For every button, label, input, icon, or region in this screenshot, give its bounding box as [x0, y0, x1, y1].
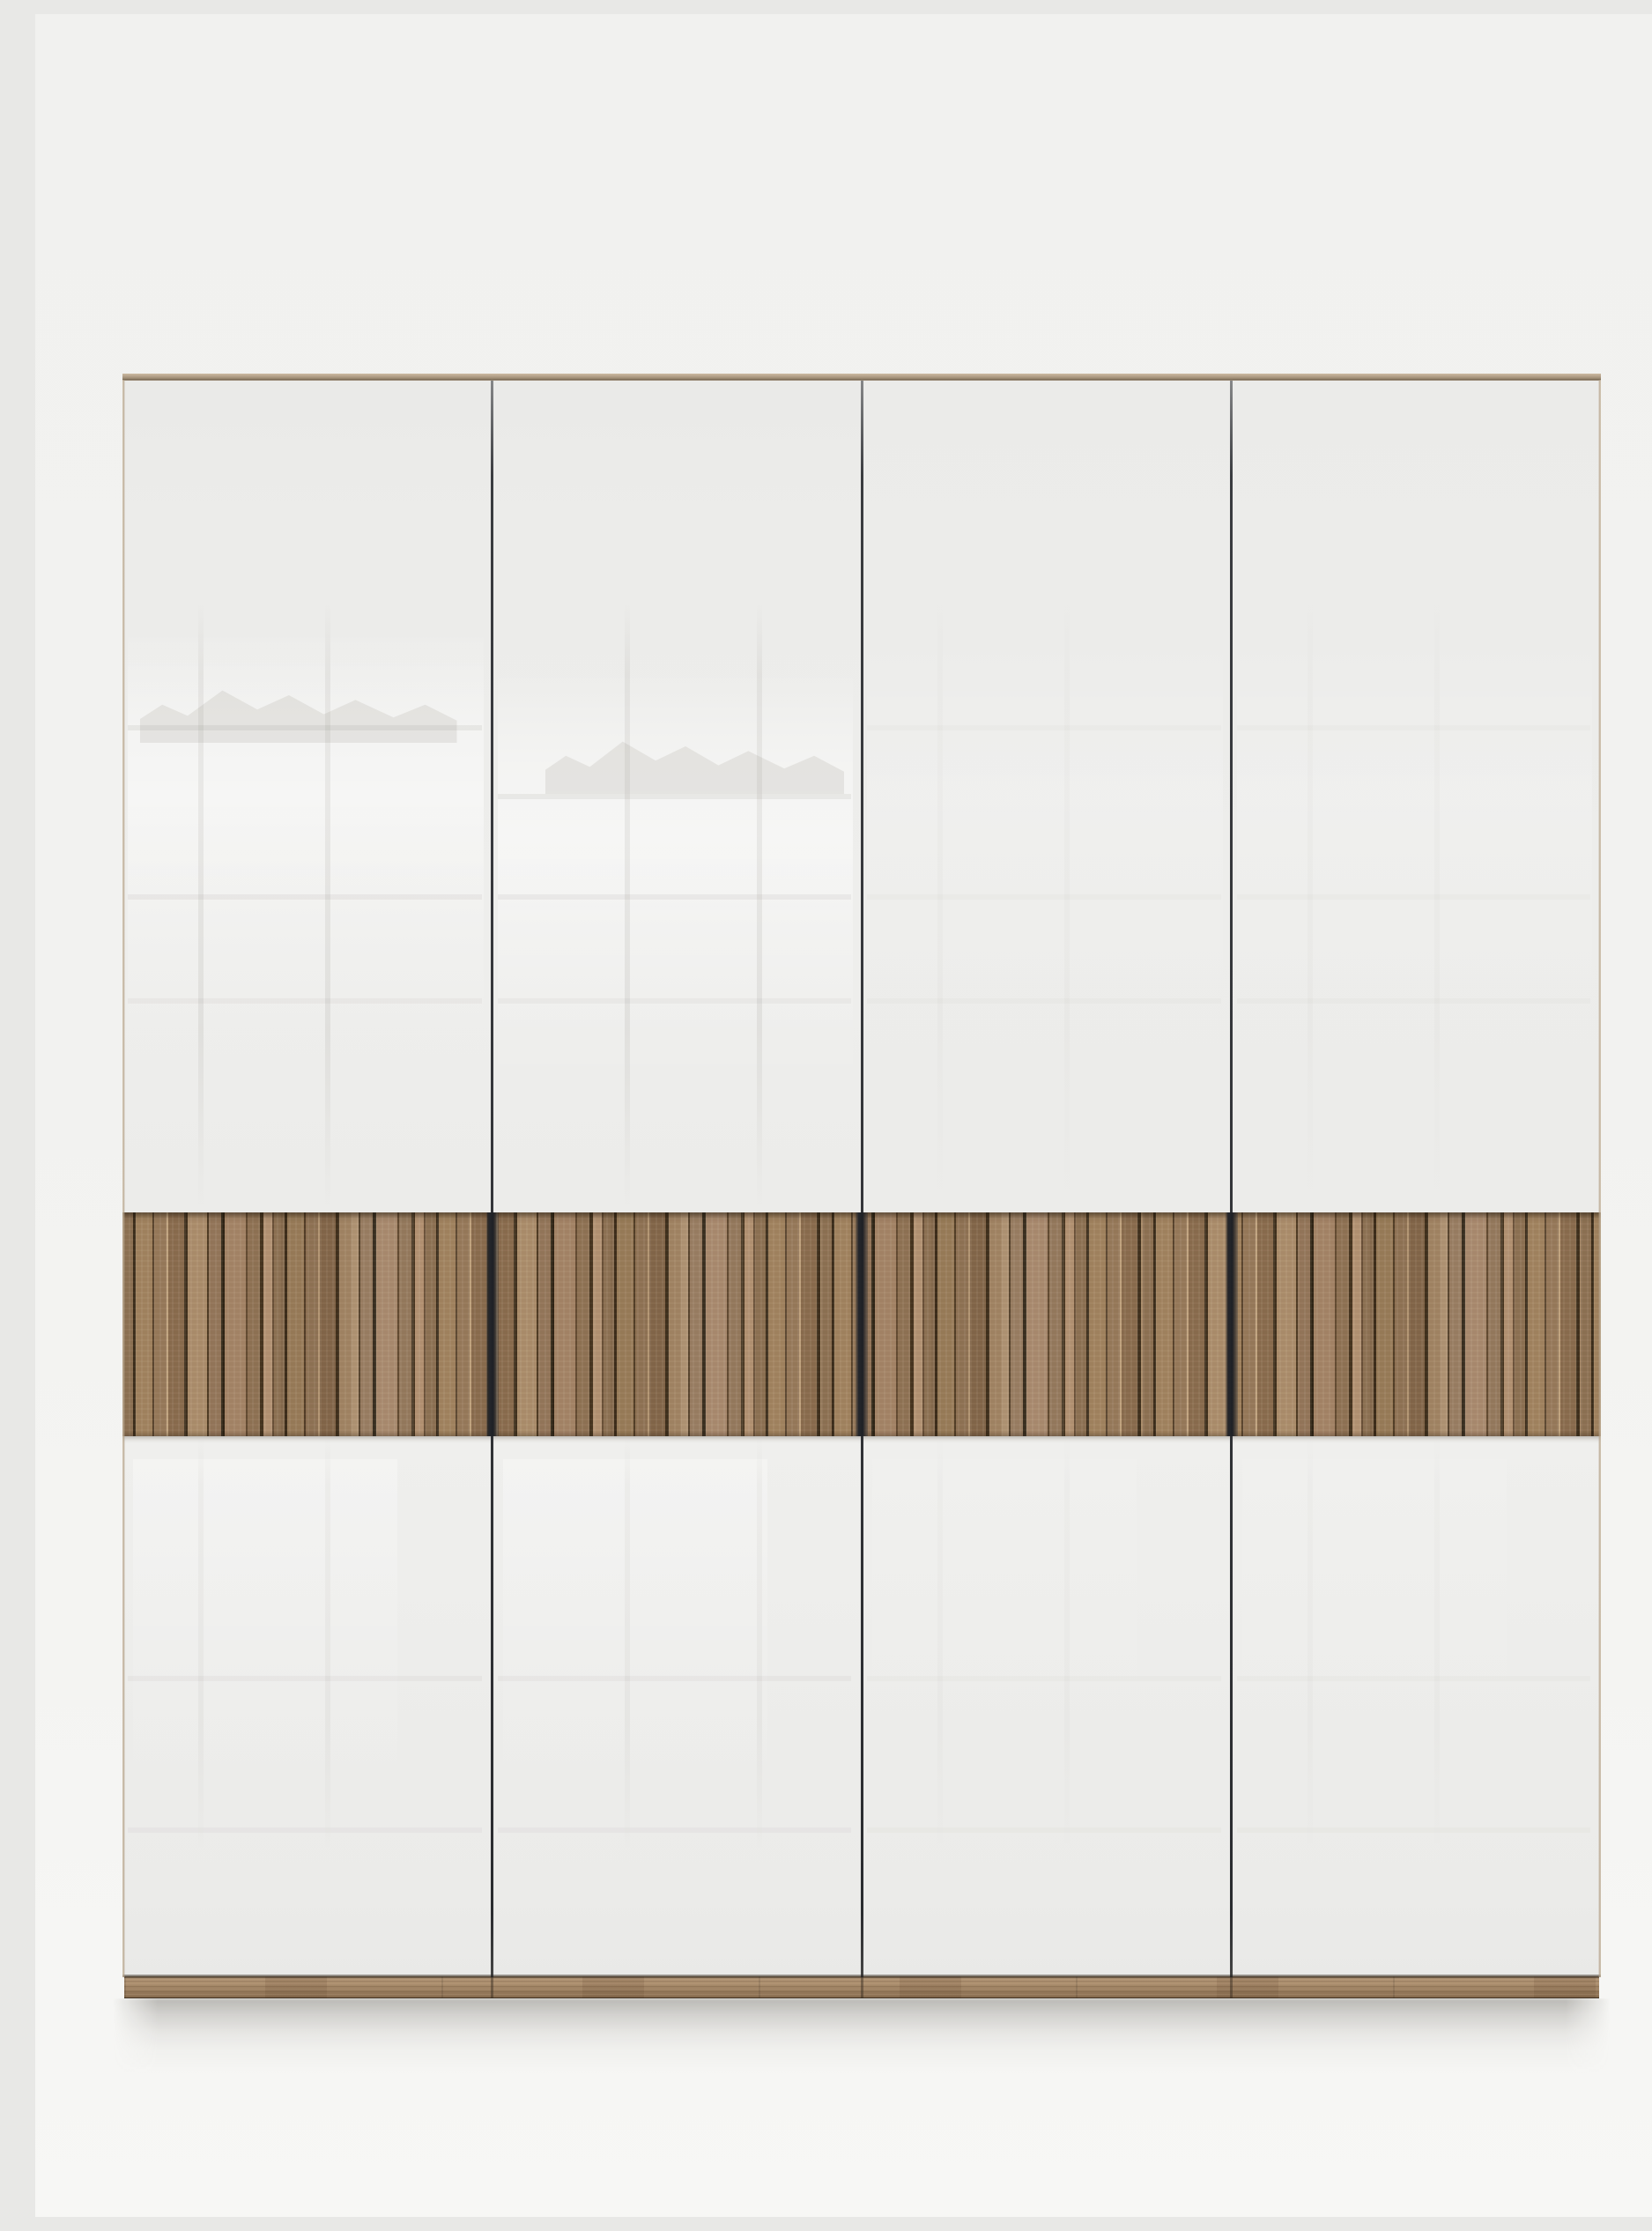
floor-shadow: [113, 1998, 1611, 2074]
window-reflection-frame-line: [128, 894, 482, 900]
window-reflection-frame-line: [867, 725, 1221, 730]
wardrobe-door-4: [1232, 380, 1602, 1977]
door-lower-panel: [493, 1436, 863, 1977]
wardrobe-right-edge: [1598, 380, 1601, 1977]
window-reflection-frame-line: [1434, 1436, 1440, 1850]
door-upper-panel: [862, 380, 1232, 1212]
window-reflection-glow: [128, 631, 484, 1045]
window-reflection-frame-line: [498, 998, 852, 1004]
window-reflection-roofline: [140, 663, 457, 743]
window-reflection-glow: [498, 671, 854, 1085]
door-upper-panel: [1232, 380, 1602, 1212]
door-slat-panel: [1232, 1212, 1602, 1436]
window-reflection-frame-line: [498, 1827, 852, 1833]
window-reflection-frame-line: [937, 600, 943, 1212]
window-reflection-frame-line: [1434, 600, 1440, 1212]
window-reflection-frame-line: [867, 998, 1221, 1004]
door-lower-panel: [1232, 1436, 1602, 1977]
window-reflection-frame-line: [498, 1676, 852, 1681]
window-reflection-frame-line: [1237, 998, 1591, 1004]
window-reflection-frame-line: [867, 1676, 1221, 1681]
window-reflection-frame-line: [1237, 894, 1591, 900]
window-reflection-frame-line: [198, 600, 204, 1212]
window-reflection-glow: [133, 1459, 397, 1794]
window-reflection-frame-line: [625, 600, 630, 1212]
window-reflection-frame-line: [867, 894, 1221, 900]
window-reflection-frame-line: [937, 1436, 943, 1850]
window-reflection-frame-line: [1237, 1827, 1591, 1833]
window-reflection-frame-line: [1237, 1676, 1591, 1681]
wardrobe-left-edge: [122, 380, 125, 1977]
window-reflection-frame-line: [128, 1827, 482, 1833]
wardrobe-product-photo: [35, 14, 1652, 2217]
window-reflection-frame-line: [1064, 600, 1070, 1212]
wardrobe-door-3: [862, 380, 1232, 1977]
window-reflection-frame-line: [325, 600, 330, 1212]
window-reflection-frame-line: [128, 998, 482, 1004]
window-reflection-frame-line: [1308, 1436, 1313, 1850]
door-gap-slat-shadow: [486, 1212, 499, 1436]
door-slat-panel: [122, 1212, 493, 1436]
window-reflection-glow: [867, 631, 1223, 1045]
door-gap: [491, 380, 493, 1977]
window-reflection-frame-line: [498, 894, 852, 900]
window-reflection-glow: [872, 1459, 1137, 1794]
window-reflection-frame-line: [498, 794, 852, 799]
window-reflection-frame-line: [625, 1436, 630, 1850]
door-upper-panel: [122, 380, 493, 1212]
wardrobe-door-1: [122, 380, 493, 1977]
wardrobe: [122, 374, 1601, 1998]
door-slat-panel: [862, 1212, 1232, 1436]
window-reflection-frame-line: [198, 1436, 204, 1850]
window-reflection-frame-line: [867, 1827, 1221, 1833]
door-upper-panel: [493, 380, 863, 1212]
wardrobe-top-edge: [122, 374, 1601, 381]
door-lower-panel: [122, 1436, 493, 1977]
window-reflection-frame-line: [757, 600, 762, 1212]
window-reflection-glow: [503, 1459, 767, 1794]
window-reflection-frame-line: [128, 1676, 482, 1681]
window-reflection-roofline: [545, 715, 845, 794]
door-lower-panel: [862, 1436, 1232, 1977]
window-reflection-frame-line: [128, 725, 482, 730]
door-gap-slat-shadow: [856, 1212, 868, 1436]
window-reflection-glow: [1242, 1459, 1507, 1794]
window-reflection-glow: [1237, 631, 1593, 1045]
wardrobe-door-2: [493, 380, 863, 1977]
window-reflection-frame-line: [325, 1436, 330, 1850]
window-reflection-frame-line: [1308, 600, 1313, 1212]
window-reflection-frame-line: [1064, 1436, 1070, 1850]
door-gap: [861, 380, 863, 1977]
window-reflection-frame-line: [757, 1436, 762, 1850]
door-gap-slat-shadow: [1226, 1212, 1238, 1436]
door-gap: [1230, 380, 1233, 1977]
window-reflection-frame-line: [1237, 725, 1591, 730]
door-slat-panel: [493, 1212, 863, 1436]
